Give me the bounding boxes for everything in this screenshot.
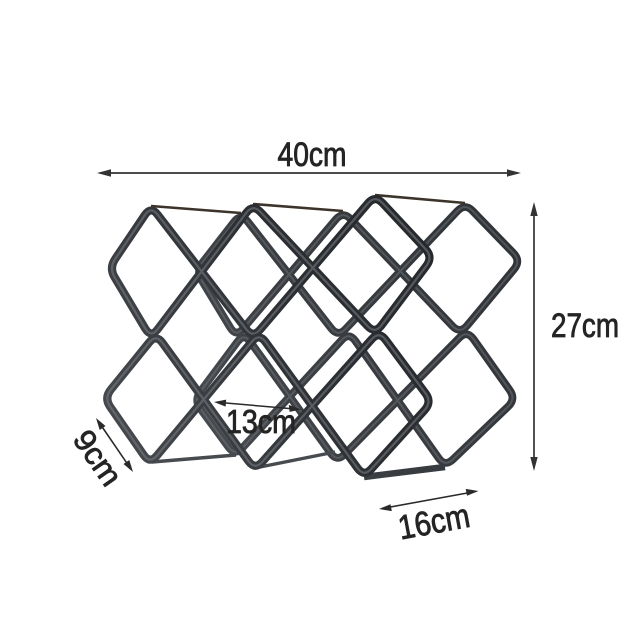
svg-text:27cm: 27cm (551, 307, 619, 345)
svg-text:13cm: 13cm (226, 403, 296, 440)
svg-text:40cm: 40cm (278, 136, 347, 174)
